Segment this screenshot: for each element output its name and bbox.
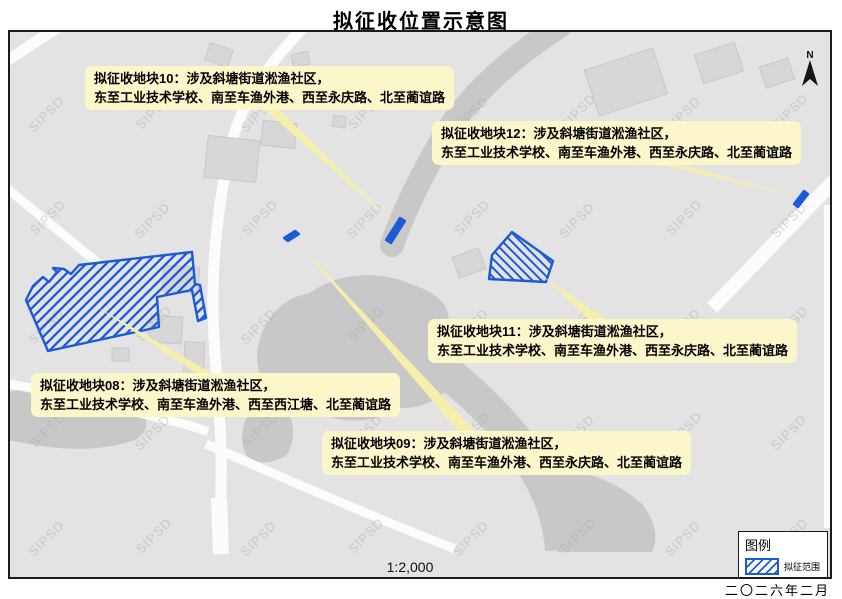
callout-10-line2: 东至工业技术学校、南至车渔外港、西至永庆路、北至蔺谊路 xyxy=(94,88,445,107)
callout-block-11: 拟征收地块11：涉及斜塘街道淞渔社区， 东至工业技术学校、南至车渔外港、西至永庆… xyxy=(428,319,797,363)
callout-block-08: 拟征收地块08：涉及斜塘街道淞渔社区， 东至工业技术学校、南至车渔外港、西至西江… xyxy=(31,373,400,417)
north-label: N xyxy=(806,50,813,61)
legend-hatch-swatch-icon xyxy=(745,558,779,575)
callout-12-line2: 东至工业技术学校、南至车渔外港、西至永庆路、北至蔺谊路 xyxy=(441,143,792,162)
callout-10-line1: 拟征收地块10：涉及斜塘街道淞渔社区， xyxy=(94,69,445,88)
legend-box: 图例 拟征范围 xyxy=(738,531,828,578)
scale-text: 1:2,000 xyxy=(387,559,434,575)
callout-11-line1: 拟征收地块11：涉及斜塘街道淞渔社区， xyxy=(437,322,788,341)
legend-row: 拟征范围 xyxy=(745,558,821,575)
callout-09-line2: 东至工业技术学校、南至车渔外港、西至永庆路、北至蔺谊路 xyxy=(331,453,682,472)
callout-block-12: 拟征收地块12：涉及斜塘街道淞渔社区， 东至工业技术学校、南至车渔外港、西至永庆… xyxy=(432,121,801,165)
map-frame: SIPSD SIPSD xyxy=(8,30,832,579)
page: { "title": "拟征收位置示意图", "watermark": "SIP… xyxy=(0,0,842,595)
callout-08-line2: 东至工业技术学校、南至车渔外港、西至西江塘、北至蔺谊路 xyxy=(40,395,391,414)
map-date: 二〇二六年二月 xyxy=(725,580,830,599)
callout-12-line1: 拟征收地块12：涉及斜塘街道淞渔社区， xyxy=(441,124,792,143)
callout-block-09: 拟征收地块09：涉及斜塘街道淞渔社区， 东至工业技术学校、南至车渔外港、西至永庆… xyxy=(322,431,691,475)
legend-title: 图例 xyxy=(745,535,821,554)
callout-block-10: 拟征收地块10：涉及斜塘街道淞渔社区， 东至工业技术学校、南至车渔外港、西至永庆… xyxy=(85,66,454,110)
callout-09-line1: 拟征收地块09：涉及斜塘街道淞渔社区， xyxy=(331,434,682,453)
callout-11-line2: 东至工业技术学校、南至车渔外港、西至永庆路、北至蔺谊路 xyxy=(437,341,788,360)
map-canvas: SIPSD SIPSD xyxy=(10,32,830,577)
legend-item-label: 拟征范围 xyxy=(784,560,820,573)
callout-08-line1: 拟征收地块08：涉及斜塘街道淞渔社区， xyxy=(40,376,391,395)
